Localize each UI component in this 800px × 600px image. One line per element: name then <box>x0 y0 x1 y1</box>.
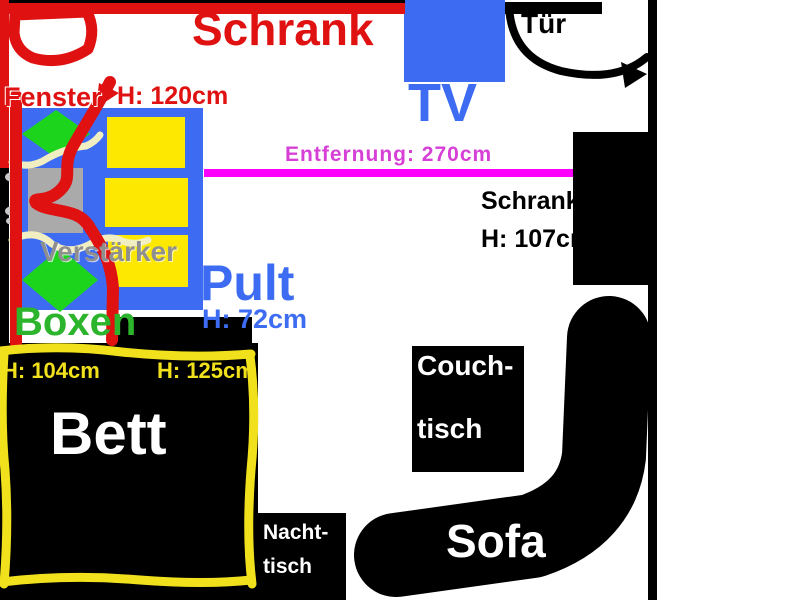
amplifier-label: Verstärker <box>40 238 177 266</box>
desk-height-label: H: 72cm <box>202 306 307 333</box>
door-label: Tür <box>521 10 566 38</box>
nightstand-label-line2: tisch <box>263 556 312 577</box>
wardrobe-right-height-label: H: 107cm <box>481 227 592 252</box>
sofa-label: Sofa <box>446 518 546 564</box>
bed-border-right <box>249 356 254 584</box>
coffee-table-label-line2: tisch <box>417 415 482 443</box>
wardrobe-top-label: Schrank <box>192 6 374 52</box>
window-label: Fenster <box>4 84 102 111</box>
bed-label: Bett <box>50 404 167 464</box>
speakers-label: Boxen <box>14 302 136 342</box>
distance-label: Entfernung: 270cm <box>285 144 492 165</box>
window-height-label: H: 120cm <box>117 84 228 109</box>
bed-height-right-label: H: 125cm <box>157 360 255 382</box>
nightstand-label-line1: Nacht- <box>263 522 328 543</box>
desk-label: Pult <box>200 258 294 308</box>
bed-height-left-label: H: 104cm <box>2 360 100 382</box>
bed-border-top <box>0 348 251 356</box>
room-sketch-canvas: Schrank TV Tür Fenster H: 120cm Entfernu… <box>0 0 800 600</box>
bed-border-bottom <box>2 577 251 582</box>
bed-border-left <box>2 354 7 584</box>
coffee-table-label-line1: Couch- <box>417 352 513 380</box>
red-outline-rectangle <box>14 12 92 61</box>
tv-label: TV <box>408 76 477 130</box>
wardrobe-right-label: Schrank <box>481 189 580 214</box>
